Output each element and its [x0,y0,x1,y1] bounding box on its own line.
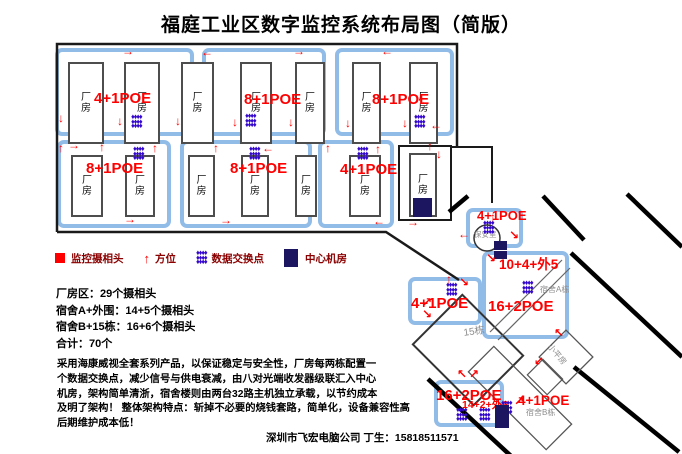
legend: 监控摄相头 ↑ 方位 ♦♦♦♦♦♦♦♦♦♦♦♦ 数据交换点 中心机房 [55,249,347,267]
poe-count-label: 4+1POE [411,296,468,312]
direction-arrow-icon: ↘ [486,253,496,264]
direction-arrow-icon: → [122,46,134,57]
direction-arrow-icon: ↓ [288,117,294,128]
stats-line: 宿舍A+外围：14+5个摄相头 [56,303,195,320]
data-switch-icon: ♦♦♦♦♦♦♦♦♦♦♦♦ [245,114,256,128]
direction-arrow-icon: ↓ [402,118,408,129]
direction-arrow-icon: ← [458,229,470,240]
direction-arrow-icon: → [124,214,136,225]
direction-arrow-icon: → [220,215,232,226]
factory-room-label: 厂房 [304,92,316,114]
direction-arrow-icon: → [68,140,80,151]
factory-room-label: 厂房 [192,92,204,114]
factory-room: 厂房 [188,155,215,217]
poe-count-label: 16+2POE [488,299,553,315]
legend-server-label: 中心机房 [305,251,347,266]
building-name-label: 宿舍A栋 [540,286,569,294]
direction-arrow-icon: ← [262,143,274,154]
direction-arrow-icon: ← [381,46,393,57]
factory-room-label: 厂房 [361,92,373,114]
legend-switch-label: 数据交换点 [212,251,265,266]
description-line: 采用海康威视全套系列产品，以保证稳定与安全性，厂房每两栋配置一 [57,358,410,373]
description-line: 机房，架构简单清浙，宿舍楼则由两台32路主机独立承载，以节约成本 [57,388,410,403]
direction-arrow-icon: ↑ [99,142,105,153]
building-name-label: 15栋 [463,326,485,339]
direction-arrow-icon: ↑ [325,143,331,154]
direction-arrow-icon: ↑ [152,143,158,154]
data-switch-icon: ♦♦♦♦♦♦♦♦♦♦♦♦ [522,281,533,295]
direction-arrow-icon: ← [201,47,213,58]
direction-arrow-icon: ↗ [469,369,479,380]
small-building-outline [527,359,562,394]
server-room-icon [494,241,507,250]
direction-arrow-icon: ↘ [422,309,432,320]
direction-arrow-icon: ← [430,120,442,131]
data-switch-icon: ♦♦♦♦♦♦♦♦♦♦♦♦ [479,408,490,422]
direction-arrow-icon: ↓ [436,149,442,160]
poe-count-label: 4+1POE [340,162,397,178]
direction-arrow-icon: ↑ [213,143,219,154]
direction-arrow-icon: ← [373,216,385,227]
poe-count-label: 8+1POE [230,161,287,177]
system-description: 采用海康威视全套系列产品，以保证稳定与安全性，厂房每两栋配置一 个数据交换点，减… [57,358,410,432]
direction-arrow-icon: ↑ [481,392,487,403]
direction-arrow-icon: ↓ [232,117,238,128]
page-title: 福庭工业区数字监控系统布局图（简版） [0,10,682,37]
legend-direction-label: 方位 [155,251,176,266]
direction-arrow-icon: ↖ [554,328,564,339]
direction-arrow-icon: ↑ [446,274,452,285]
server-room-icon [495,405,509,428]
camera-count-summary: 厂房区：29个摄相头 宿舍A+外围：14+5个摄相头 宿舍B+15栋：16+6个… [56,286,195,352]
direction-arrow-icon: ↑ [427,141,433,152]
direction-arrow-icon: ↑ [490,212,496,223]
factory-room-label: 厂房 [359,175,371,197]
stats-line: 合计：70个 [56,336,195,353]
building-name-label: 宿舍B栋 [526,409,555,417]
data-switch-icon: ♦♦♦♦♦♦♦♦♦♦♦♦ [249,147,260,161]
factory-room-label: 厂房 [249,175,261,197]
poe-count-label: 10+4+外5 [499,258,558,272]
company-contact: 深圳市飞宏电脑公司 丁生：15818511571 [266,430,459,445]
direction-arrow-icon: ↓ [117,116,123,127]
factory-room-label: 厂房 [300,175,312,197]
boundary-extension-line [451,147,492,203]
road-segment [627,194,682,247]
legend-camera-label: 监控摄相头 [71,251,124,266]
description-line: 及明了架构！ 整体架构特点：斩掉不必要的烧钱套路，简单化，设备兼容性高 [57,402,410,417]
direction-arrow-icon: ↓ [345,118,351,129]
data-switch-icon: ♦♦♦♦♦♦♦♦♦♦♦♦ [414,115,425,129]
road-segment [449,196,468,212]
road-segment [543,196,584,240]
direction-arrow-icon: ↑ [58,143,64,154]
factory-room-label: 厂房 [80,92,92,114]
direction-arrow-icon: ↑ [375,144,381,155]
factory-room-label: 厂房 [134,175,146,197]
direction-arrow-icon: → [293,46,305,57]
layout-diagram: 福庭工业区数字监控系统布局图（简版） 厂房厂房厂房厂房厂房厂房厂房厂房厂房厂房厂… [0,0,682,454]
direction-arrow-icon: ↓ [175,116,181,127]
road-segment [571,253,682,357]
data-switch-icon: ♦♦♦♦♦♦♦♦♦♦♦♦ [196,251,207,265]
direction-icon: ↑ [144,251,151,266]
poe-count-label: 4+1POE [518,394,569,408]
road-segment [574,367,679,452]
direction-arrow-icon: ↘ [509,230,519,241]
poe-count-label: 4+1POE [94,91,151,107]
stats-line: 厂房区：29个摄相头 [56,286,195,303]
camera-icon [55,253,65,263]
data-switch-icon: ♦♦♦♦♦♦♦♦♦♦♦♦ [133,147,144,161]
factory-room-label: 厂房 [81,175,93,197]
factory-room-label: 厂房 [196,175,208,197]
poe-count-label: 8+1POE [86,161,143,177]
factory-room: 厂房 [295,155,317,217]
direction-arrow-icon: → [407,217,419,228]
direction-arrow-icon: ↘ [459,277,469,288]
building-name-label: 小平房 [546,343,568,367]
stats-line: 宿舍B+15栋：16+6个摄相头 [56,319,195,336]
direction-arrow-icon: ↗ [514,396,524,407]
direction-arrow-icon: ↖ [457,369,467,380]
server-room-icon [284,249,298,267]
data-switch-icon: ♦♦♦♦♦♦♦♦♦♦♦♦ [456,408,467,422]
poe-count-label: 8+1POE [244,92,301,108]
direction-arrow-icon: ↙ [534,356,544,367]
direction-arrow-icon: ↓ [58,113,64,124]
description-line: 个数据交换点，减少信号与供电衰减，由八对光端收发器级联汇入中心 [57,373,410,388]
factory-room-label: 厂房 [417,174,429,196]
data-switch-icon: ♦♦♦♦♦♦♦♦♦♦♦♦ [357,147,368,161]
data-switch-icon: ♦♦♦♦♦♦♦♦♦♦♦♦ [131,115,142,129]
poe-count-label: 8+1POE [372,92,429,108]
factory-room: 厂房 [181,62,214,144]
